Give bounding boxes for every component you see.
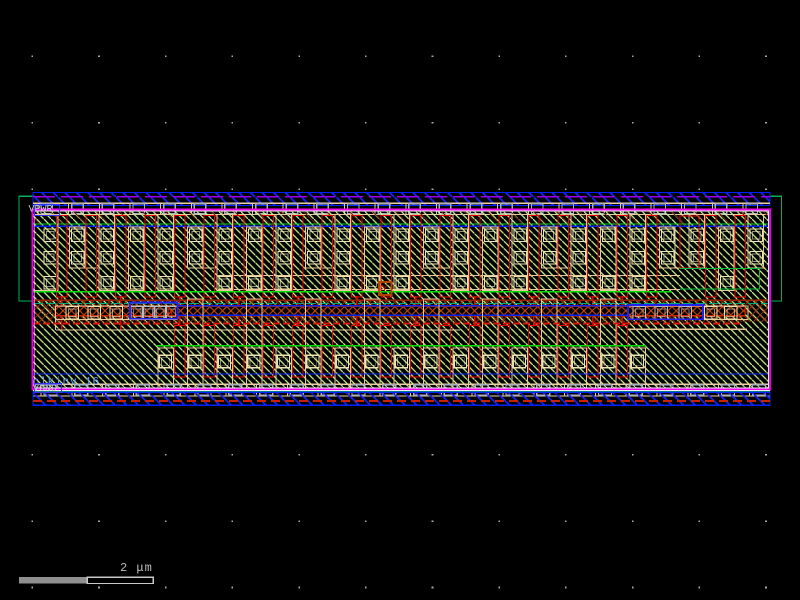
svg-text:VGND: VGND [33,384,57,395]
svg-text:Y: Y [382,285,388,296]
svg-text:A: A [166,307,173,319]
svg-text:VPWR: VPWR [29,205,53,216]
svg-text:2 μm: 2 μm [120,561,153,575]
